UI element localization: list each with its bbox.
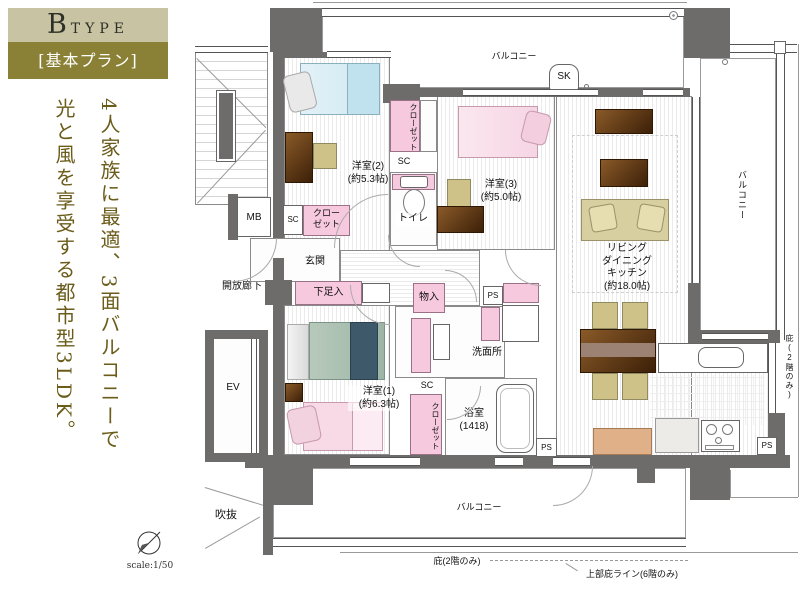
floorplan-page: { "header": { "type_main": "B", "type_su…: [0, 0, 801, 590]
toilet-label: トイレ: [396, 213, 430, 226]
kitchen-sink: [698, 347, 744, 368]
sc-label-entrance: SC: [287, 215, 298, 224]
bathtub-inner: [500, 388, 530, 449]
bedroom1-name: 洋室(1): [348, 386, 410, 399]
elevator-label: EV: [214, 382, 252, 395]
window-kitchen-north: [702, 333, 768, 340]
ps-label-top: PS: [488, 291, 499, 300]
sofa-cushion-right: [636, 203, 666, 233]
ldk-line1: リビング: [593, 243, 661, 256]
shoe-cabinet-label: 下足入: [314, 287, 344, 298]
sofa-cushion-left: [588, 203, 618, 233]
sk-label: SK: [557, 71, 570, 82]
storage-label: 物入: [419, 292, 439, 303]
desk-bedroom2: [285, 132, 313, 183]
upper-eave-label: 上部庇ライン(6階のみ): [576, 569, 688, 580]
bed1-throw: [350, 322, 378, 380]
washroom-label: 洗面所: [466, 347, 508, 360]
void-label: 吹抜: [208, 509, 244, 523]
desk-bedroom3: [437, 206, 484, 233]
elevator-door: [251, 339, 257, 453]
pillar-top-right: [684, 8, 730, 58]
plan-badge: [基本プラン]: [8, 42, 168, 79]
ldk-size: (約18.0帖): [593, 281, 661, 294]
closet-b1-text1: クロー: [431, 402, 440, 426]
stove-burner-left: [706, 424, 717, 435]
window-kitchen-east: [768, 343, 776, 415]
right-step-line-v: [730, 470, 731, 497]
stove-burner-small: [715, 437, 722, 444]
tagline-line1: 4人家族に最適、3面バルコニーで: [95, 98, 124, 470]
bottom-eave-line: [340, 552, 798, 553]
pillar-bottom-left: [263, 468, 313, 505]
utility-box: [502, 305, 539, 342]
ldk-line3: キッチン: [593, 268, 661, 281]
closet-b1-text2: ゼット: [431, 426, 440, 450]
sc-label-bedroom1: SC: [414, 380, 440, 391]
void-diagonal-1: [205, 487, 264, 506]
wall-void-edge: [263, 505, 273, 555]
pillar-south-b: [690, 468, 730, 500]
tagline-line2: 光と風を享受する都市型3LDK。: [50, 98, 79, 470]
mb-label: MB: [247, 212, 262, 223]
railing-corner-post: [774, 41, 786, 54]
right-step-line-h: [730, 497, 798, 498]
window-ldk-east: [692, 97, 700, 283]
dining-chair-3: [592, 373, 618, 400]
toilet-tank: [400, 176, 428, 188]
closet-bedroom1: クローゼット: [410, 394, 442, 455]
type-badge: BTYPE: [8, 8, 168, 42]
closet-bedrooms-top: クローゼット: [390, 100, 420, 152]
wall-west-lower: [273, 305, 284, 455]
bedroom3-label: 洋室(3) (約5.0帖): [470, 179, 532, 204]
pillar-top-left: [270, 8, 322, 52]
washing-machine: [433, 324, 450, 360]
balcony-top-label: バルコニー: [489, 51, 539, 62]
upper-eave-dashed-line: [490, 560, 688, 561]
bedroom3-size: (約5.0帖): [470, 192, 532, 205]
refrigerator: [655, 418, 699, 453]
dining-chair-2: [622, 302, 648, 329]
type-badge-letter: B: [47, 9, 67, 40]
bed-bedroom2-cover: [347, 63, 380, 115]
eave-right-label: 庇(2階のみ): [784, 334, 795, 400]
vanity: [411, 318, 431, 373]
dining-table-runner: [581, 343, 655, 357]
faucet-dot: [584, 84, 589, 89]
open-corridor-label: 開放廊下: [218, 281, 266, 294]
ldk-line2: ダイニング: [593, 256, 661, 269]
entrance-label: 玄関: [300, 256, 330, 269]
right-eave-line: [798, 44, 799, 497]
kitchen-counter: [593, 428, 652, 455]
closet-top-text2: ゼット: [409, 127, 418, 151]
balcony-bottom-railing: [270, 538, 686, 547]
chair-bedroom2: [313, 143, 337, 169]
balcony-bottom-label: バルコニー: [454, 502, 504, 513]
tagline: 4人家族に最適、3面バルコニーで 光と風を享受する都市型3LDK。: [34, 98, 124, 470]
bedroom2-size: (約5.3帖): [337, 174, 399, 187]
slop-sink: SK: [549, 64, 579, 90]
closet-top-text1: クロー: [409, 103, 418, 127]
bedroom1-size: (約6.3帖): [348, 399, 410, 412]
window-south-small: [495, 457, 523, 466]
door-arc-ldk: [505, 250, 541, 286]
ps-duct-top: [503, 283, 539, 303]
pillar-south-a: [637, 468, 655, 483]
chair-bedroom3: [447, 179, 471, 207]
ldk-label: リビング ダイニング キッチン (約18.0帖): [593, 243, 661, 293]
stove-burner-right: [722, 424, 733, 435]
meter-box: MB: [237, 197, 271, 237]
bedroom3-name: 洋室(3): [470, 179, 532, 192]
window-bedroom1-south: [350, 457, 420, 466]
nightstand-bedroom1: [285, 383, 303, 402]
toilet-bowl: [403, 189, 425, 216]
eave-bottom-label: 庇(2階のみ): [429, 556, 485, 567]
compass-icon: [133, 527, 165, 559]
wall-entrance-corner: [265, 280, 292, 305]
bedroom1-label: 洋室(1) (約6.3帖): [348, 386, 410, 411]
coffee-table: [600, 159, 648, 187]
bathroom-size: (1418): [450, 421, 498, 434]
window-bedroom2: [327, 51, 391, 58]
stair-top-railing: [195, 46, 268, 53]
ps-duct-side: [481, 307, 500, 341]
sc-label-top: SC: [390, 156, 418, 167]
stove-grill: [705, 445, 734, 450]
sc-box-entrance: SC: [283, 205, 303, 235]
closet-top-fold: [420, 100, 437, 152]
bed1-pillow: [287, 324, 309, 380]
top-eave-line: [313, 2, 687, 3]
ps-box-kitchen: PS: [757, 437, 777, 455]
wall-west-entrance: [273, 258, 284, 282]
tv-board: [595, 109, 653, 134]
ps-box-bath: PS: [536, 438, 557, 457]
type-badge-word: TYPE: [71, 21, 129, 37]
balcony-right-label: バルコニー: [736, 170, 749, 220]
scale-label: scale:1/50: [118, 561, 182, 571]
drain-top: [669, 11, 678, 20]
balcony-top-railing: [322, 8, 684, 17]
window-ldk-top: [643, 89, 683, 96]
stair-handrail: [219, 93, 233, 159]
dining-chair-1: [592, 302, 618, 329]
ps-label-kitchen: PS: [762, 441, 773, 450]
window-ldk-south: [553, 457, 590, 466]
ps-label-bath: PS: [541, 443, 552, 452]
dining-chair-4: [622, 373, 648, 400]
storage-closet: 物入: [413, 283, 445, 313]
window-bedroom3: [463, 89, 598, 96]
balcony-topright-railing: [730, 44, 797, 53]
drain-right: [722, 59, 728, 65]
ps-box-top: PS: [483, 286, 503, 305]
balcony-right-railing: [776, 53, 785, 340]
